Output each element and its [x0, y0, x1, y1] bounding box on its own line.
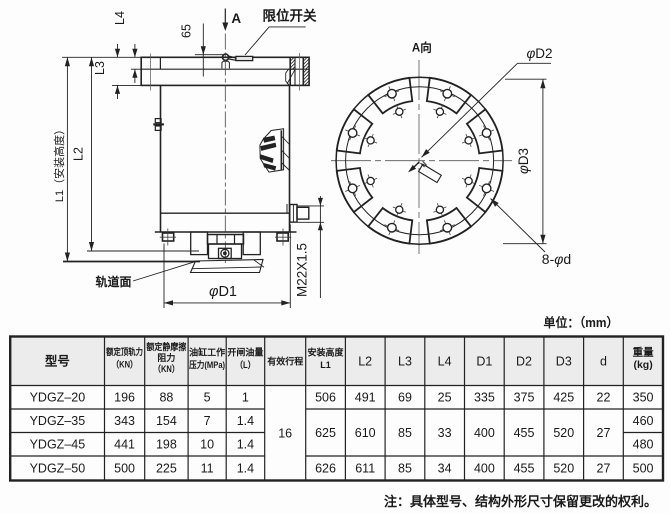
- svg-text:500: 500: [114, 462, 135, 476]
- svg-text:610: 610: [355, 426, 376, 440]
- svg-text:69: 69: [398, 391, 412, 405]
- svg-text:L1（安装高度）: L1（安装高度）: [52, 124, 66, 202]
- svg-text:L2: L2: [358, 355, 372, 369]
- svg-text:27: 27: [597, 426, 611, 440]
- svg-text:335: 335: [474, 391, 495, 405]
- svg-text:阻力: 阻力: [157, 352, 175, 363]
- svg-text:（KN）: （KN）: [153, 364, 179, 374]
- svg-text:400: 400: [474, 426, 495, 440]
- svg-text:85: 85: [398, 426, 412, 440]
- svg-text:65: 65: [180, 24, 194, 38]
- svg-text:安装高度: 安装高度: [307, 347, 344, 358]
- svg-text:D1: D1: [476, 355, 492, 369]
- svg-text:10: 10: [200, 438, 214, 452]
- svg-text:有效行程: 有效行程: [267, 356, 303, 367]
- svg-text:YDGZ–45: YDGZ–45: [30, 438, 86, 452]
- svg-text:L3: L3: [93, 61, 107, 75]
- svg-text:225: 225: [156, 462, 177, 476]
- svg-text:L2: L2: [72, 147, 86, 161]
- svg-text:22: 22: [597, 391, 611, 405]
- svg-text:额定静摩擦: 额定静摩擦: [146, 341, 186, 352]
- svg-text:压力(MPa): 压力(MPa): [189, 359, 225, 370]
- svg-text:11: 11: [201, 462, 214, 476]
- svg-text:单位：（mm）: 单位：（mm）: [544, 315, 619, 330]
- svg-text:（L）: （L）: [235, 360, 255, 370]
- svg-text:88: 88: [159, 391, 173, 405]
- svg-text:500: 500: [633, 462, 654, 476]
- svg-text:M22X1.5: M22X1.5: [295, 243, 310, 297]
- svg-text:重量: 重量: [633, 346, 654, 359]
- svg-text:YDGZ–35: YDGZ–35: [30, 414, 86, 428]
- svg-text:1: 1: [242, 391, 249, 405]
- svg-text:520: 520: [553, 426, 574, 440]
- svg-text:φD2: φD2: [526, 46, 552, 61]
- svg-text:型号: 型号: [45, 354, 70, 369]
- svg-text:开闸油量: 开闸油量: [227, 347, 263, 358]
- svg-text:520: 520: [553, 462, 574, 476]
- svg-text:L4: L4: [113, 11, 127, 25]
- svg-text:1.4: 1.4: [237, 462, 254, 476]
- svg-text:625: 625: [315, 426, 336, 440]
- svg-text:198: 198: [156, 438, 177, 452]
- svg-text:YDGZ–50: YDGZ–50: [30, 462, 86, 476]
- svg-text:L1: L1: [320, 360, 331, 370]
- svg-text:A: A: [231, 11, 241, 26]
- svg-text:34: 34: [438, 462, 452, 476]
- svg-text:φD1: φD1: [209, 284, 237, 300]
- svg-text:425: 425: [553, 391, 574, 405]
- svg-text:（KN）: （KN）: [112, 360, 138, 370]
- svg-text:626: 626: [315, 462, 336, 476]
- svg-text:480: 480: [633, 438, 654, 452]
- svg-text:L3: L3: [398, 355, 412, 369]
- svg-text:25: 25: [438, 391, 452, 405]
- svg-text:限位开关: 限位开关: [263, 8, 317, 24]
- svg-text:400: 400: [474, 462, 495, 476]
- svg-text:154: 154: [156, 414, 177, 428]
- svg-text:506: 506: [315, 391, 336, 405]
- svg-text:455: 455: [514, 426, 535, 440]
- svg-text:D2: D2: [516, 355, 532, 369]
- svg-text:27: 27: [597, 462, 611, 476]
- svg-text:1.4: 1.4: [237, 438, 254, 452]
- svg-text:(kg): (kg): [633, 359, 652, 371]
- svg-text:33: 33: [438, 426, 452, 440]
- svg-text:491: 491: [355, 391, 376, 405]
- svg-text:油缸工作: 油缸工作: [189, 347, 225, 358]
- svg-text:注：具体型号、结构外形尺寸保留更改的权利。: 注：具体型号、结构外形尺寸保留更改的权利。: [384, 494, 657, 509]
- svg-text:16: 16: [278, 426, 292, 440]
- svg-text:YDGZ–20: YDGZ–20: [30, 391, 86, 405]
- svg-text:7: 7: [204, 414, 211, 428]
- svg-text:343: 343: [114, 414, 135, 428]
- svg-text:460: 460: [633, 414, 654, 428]
- svg-text:A向: A向: [412, 41, 432, 55]
- svg-text:196: 196: [114, 391, 135, 405]
- svg-text:5: 5: [204, 391, 211, 405]
- svg-text:1.4: 1.4: [237, 414, 254, 428]
- svg-text:441: 441: [114, 438, 135, 452]
- svg-text:8-φd: 8-φd: [542, 251, 571, 267]
- svg-text:L4: L4: [438, 355, 452, 369]
- svg-text:85: 85: [398, 462, 412, 476]
- svg-text:轨道面: 轨道面: [95, 274, 131, 289]
- svg-text:611: 611: [355, 462, 375, 476]
- svg-text:额定顶轨力: 额定顶轨力: [106, 346, 143, 357]
- svg-text:D3: D3: [556, 355, 572, 369]
- svg-text:455: 455: [514, 462, 535, 476]
- svg-text:350: 350: [633, 391, 654, 405]
- svg-text:φD3: φD3: [516, 148, 531, 174]
- svg-text:375: 375: [514, 391, 535, 405]
- svg-text:d: d: [600, 355, 607, 369]
